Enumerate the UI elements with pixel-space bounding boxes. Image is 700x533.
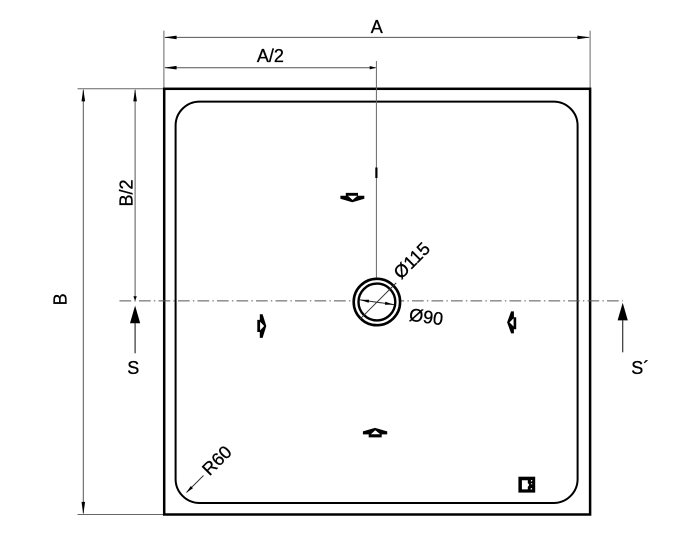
svg-text:S: S bbox=[127, 358, 139, 378]
svg-text:S´: S´ bbox=[631, 358, 649, 378]
svg-text:B: B bbox=[50, 293, 70, 305]
svg-text:A/2: A/2 bbox=[257, 46, 284, 66]
svg-text:A: A bbox=[371, 17, 383, 37]
svg-text:B/2: B/2 bbox=[116, 179, 136, 206]
